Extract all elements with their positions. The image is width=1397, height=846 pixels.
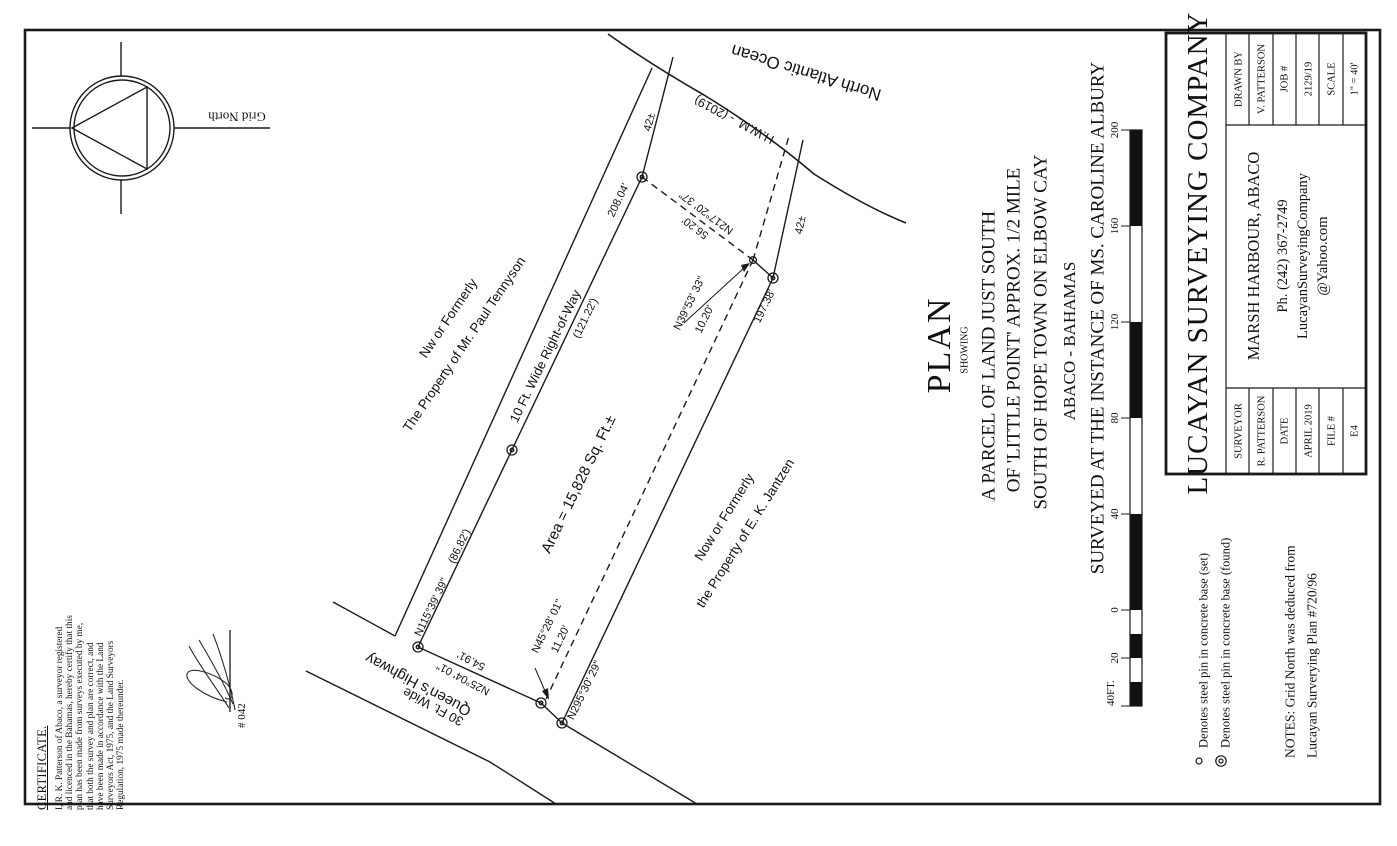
certificate-heading: CERTIFICATE. bbox=[35, 530, 50, 810]
legend-found-text: Denotes steel pin in concrete base (foun… bbox=[1218, 538, 1232, 748]
scale-value: 1" = 40' bbox=[1350, 62, 1361, 95]
company-address: MARSH HARBOUR, ABACO bbox=[1244, 152, 1263, 361]
highway-ne-edge-3 bbox=[562, 723, 697, 804]
arrowhead-ne bbox=[741, 263, 750, 272]
scale-tick-40: 40 bbox=[1109, 508, 1121, 520]
surveyor-value: R. PATTERSON bbox=[1257, 395, 1268, 466]
certificate-line: and licenced in the Bahamas, hereby cert… bbox=[65, 530, 75, 810]
certificate-line: I, R. K. Patterson of Abaco, a surveyor … bbox=[55, 530, 65, 810]
legend-set-text: Denotes steel pin in concrete base (set) bbox=[1196, 553, 1210, 748]
surveyor-signature: # 042 bbox=[183, 614, 251, 732]
legend: Denotes steel pin in concrete base (set)… bbox=[1196, 538, 1232, 767]
job-label: JOB # bbox=[1280, 65, 1291, 92]
leader-sw bbox=[535, 668, 545, 691]
scale-tick-0: 0 bbox=[1109, 607, 1121, 613]
plan-showing-word: SHOWING bbox=[960, 326, 971, 373]
job-value: 2129/19 bbox=[1304, 62, 1315, 96]
plan-title-line3: SOUTH OF HOPE TOWN ON ELBOW CAY bbox=[1031, 154, 1052, 509]
license-number: # 042 bbox=[236, 703, 248, 728]
plan-title-line5: SURVEYED AT THE INSTANCE OF MS. CAROLINE… bbox=[1088, 61, 1109, 574]
surveyor-label: SURVEYOR bbox=[1234, 403, 1245, 459]
company-email-line2: @Yahoo.com bbox=[1315, 216, 1331, 296]
date-label: DATE bbox=[1280, 418, 1291, 445]
file-label: FILE # bbox=[1327, 415, 1338, 446]
boundary-lines bbox=[306, 57, 803, 804]
scale-tick-160: 160 bbox=[1109, 217, 1121, 234]
tie-b-label: 42± bbox=[793, 215, 809, 235]
plan-title-line1: A PARCEL OF LAND JUST SOUTH bbox=[979, 211, 1000, 501]
company-name: LUCAYAN SURVEYING COMPANY bbox=[1182, 12, 1214, 495]
hwm-tie-dashed bbox=[753, 136, 789, 260]
grid-north-compass bbox=[32, 42, 270, 214]
hwm-label: H.W.M. - (2019) bbox=[692, 93, 776, 147]
scale-bar: 200 160 120 80 40 0 20 40FT. bbox=[1105, 121, 1142, 706]
company-email-line1: LucayanSurveyingCompany bbox=[1295, 172, 1311, 339]
title-block: LUCAYAN SURVEYING COMPANY DRAWN BY V. PA… bbox=[1166, 12, 1366, 495]
pin-found-icon bbox=[1216, 756, 1226, 766]
scale-label: SCALE bbox=[1327, 62, 1338, 95]
plan-title: PLAN SHOWING A PARCEL OF LAND JUST SOUTH… bbox=[921, 61, 1109, 574]
drawn-by-value: V. PATTERSON bbox=[1257, 44, 1268, 114]
drawing-labels: N115°39' 39" (86.82') (121.22') 208.04' … bbox=[362, 112, 808, 729]
ocean-label: North Atlantic Ocean bbox=[729, 41, 884, 105]
notes-line2: Lucayan Surverying Plan #720/96 bbox=[1305, 573, 1320, 758]
drawn-by-label: DRAWN BY bbox=[1234, 51, 1245, 107]
se-dist-label: 197.38' bbox=[752, 288, 778, 325]
certificate-line: Regulation, 1975 made thereunder. bbox=[116, 530, 126, 810]
area-label: Area = 15,828 Sq. Ft.± bbox=[538, 413, 620, 556]
scale-tick-80: 80 bbox=[1109, 412, 1121, 424]
scale-tick-200: 200 bbox=[1109, 121, 1121, 138]
certificate-block: CERTIFICATE. I, R. K. Patterson of Abaco… bbox=[35, 530, 250, 810]
certificate-line: that both the survey and plan are correc… bbox=[86, 530, 96, 810]
date-value: APRIL 2019 bbox=[1304, 404, 1315, 458]
right-of-way-label: 10 Ft. Wide Right-of-Way bbox=[506, 287, 583, 425]
nw-total-label: 208.04' bbox=[606, 182, 632, 219]
grid-north-label: Grid North bbox=[208, 109, 266, 124]
highway-dist-label: 54.91' bbox=[455, 648, 487, 673]
nw-boundary bbox=[418, 177, 642, 647]
survey-plan-sheet: Grid North North Atlantic Ocean H.W.M. -… bbox=[0, 0, 1397, 846]
ne-leg-dist-label: 10.20' bbox=[693, 303, 717, 335]
ne-dashed-line bbox=[642, 177, 753, 260]
plan-title-word: PLAN bbox=[921, 297, 958, 394]
certificate-line: Surveyors Act, 1975, and the Land Survey… bbox=[106, 530, 116, 810]
pin-set-icon bbox=[1196, 758, 1202, 764]
file-value: E4 bbox=[1350, 424, 1361, 436]
scale-tick-120: 120 bbox=[1109, 313, 1121, 330]
scale-unit-label: 40FT. bbox=[1105, 680, 1117, 706]
highway-ne-edge-1 bbox=[333, 602, 395, 636]
tie-a-label: 42± bbox=[642, 112, 658, 133]
company-phone: Ph. (242) 367-2749 bbox=[1275, 199, 1291, 312]
notes-line1: NOTES: Grid North was deduced from bbox=[1283, 545, 1298, 758]
plan-title-line2: OF 'LITTLE POINT' APPROX. 1/2 MILE bbox=[1004, 168, 1025, 493]
hwm-tie-b bbox=[773, 140, 803, 278]
certificate-line: have been made in accordance with the La… bbox=[96, 530, 106, 810]
se-bearing-label: N295°30' 29" bbox=[565, 659, 604, 722]
nw-seg1-label: (86.82') bbox=[446, 527, 473, 565]
certificate-line: plan has been made from surveys executed… bbox=[75, 530, 85, 810]
scale-tick-20: 20 bbox=[1109, 652, 1121, 664]
plan-title-line4: ABACO - BAHAMAS bbox=[1060, 262, 1079, 421]
notes: NOTES: Grid North was deduced from Lucay… bbox=[1283, 545, 1320, 758]
